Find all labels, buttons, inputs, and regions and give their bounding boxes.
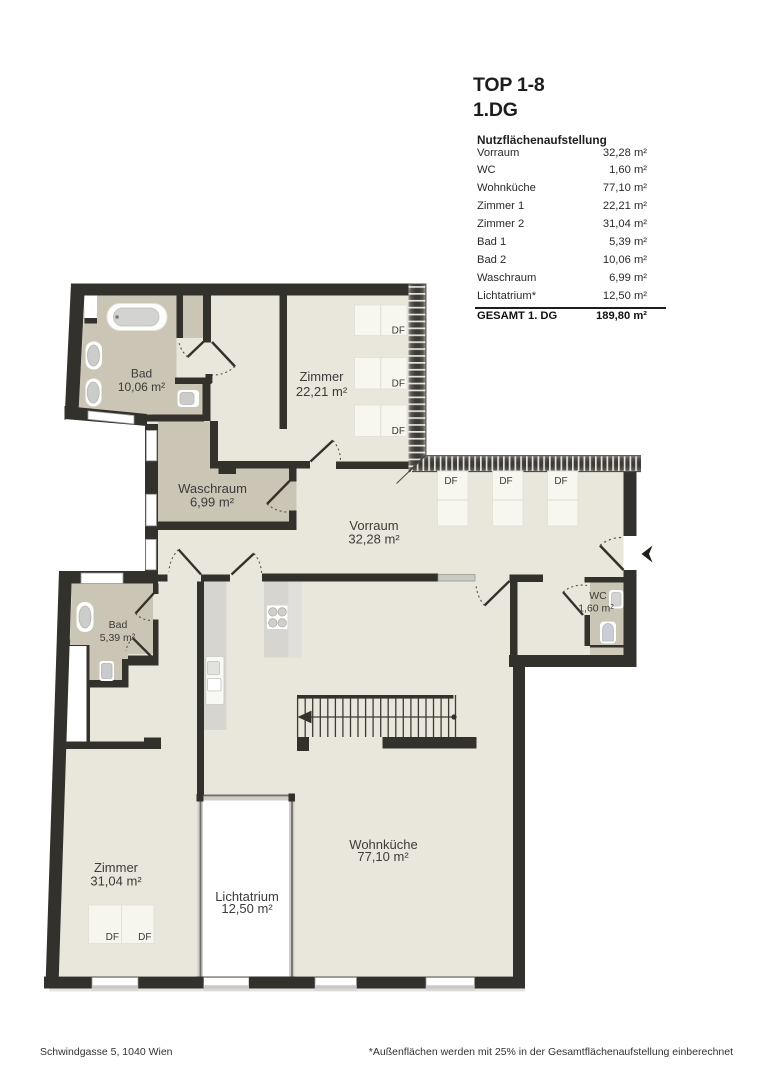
svg-text:DF: DF [444,476,457,487]
svg-text:6,99 m²: 6,99 m² [190,495,235,510]
svg-text:DF: DF [392,326,405,337]
svg-text:DF: DF [106,932,119,943]
svg-text:31,04 m²: 31,04 m² [90,874,142,889]
svg-text:5,39 m²: 5,39 m² [100,632,136,644]
svg-text:DF: DF [554,476,567,487]
svg-text:12,50 m²: 12,50 m² [221,901,273,916]
svg-text:Bad: Bad [131,367,152,381]
svg-text:Bad: Bad [109,619,128,631]
svg-text:Zimmer: Zimmer [299,369,344,384]
svg-text:32,28 m²: 32,28 m² [348,532,400,547]
svg-text:DF: DF [138,932,151,943]
svg-text:1,60 m²: 1,60 m² [578,603,614,615]
svg-text:DF: DF [392,379,405,390]
svg-text:WC: WC [589,590,607,602]
svg-text:10,06 m²: 10,06 m² [118,380,165,394]
svg-text:77,10 m²: 77,10 m² [357,849,409,864]
svg-text:DF: DF [392,426,405,437]
svg-text:DF: DF [499,476,512,487]
svg-text:22,21 m²: 22,21 m² [296,384,348,399]
